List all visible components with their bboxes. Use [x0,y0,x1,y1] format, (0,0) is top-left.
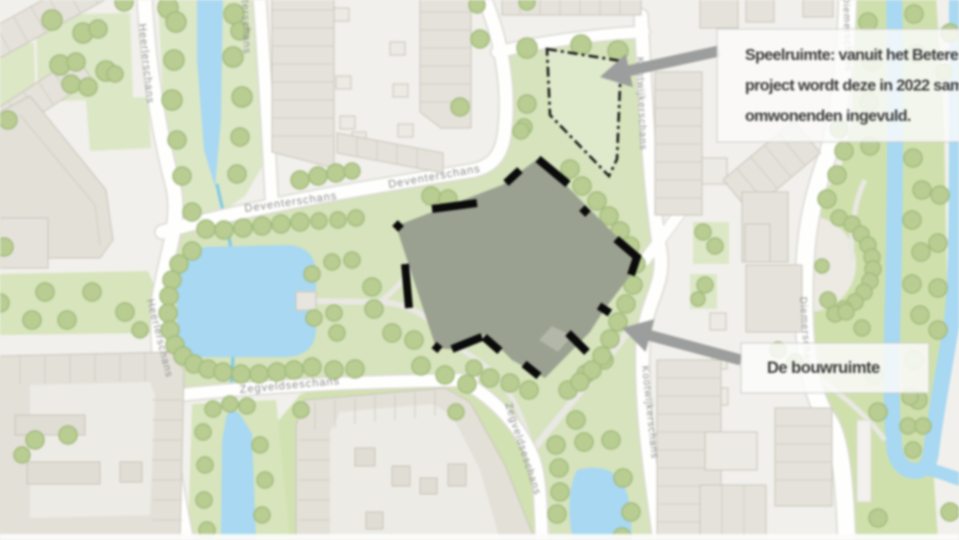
svg-text:De bouwruimte: De bouwruimte [767,359,880,377]
svg-text:Speelruimte: vanuit het Betere: Speelruimte: vanuit het Betere B [745,47,959,64]
svg-text:terschans: terschans [239,0,253,55]
svg-text:omwonenden ingevuld.: omwonenden ingevuld. [745,108,911,125]
svg-text:project wordt deze in 2022 sam: project wordt deze in 2022 samen [745,78,959,95]
